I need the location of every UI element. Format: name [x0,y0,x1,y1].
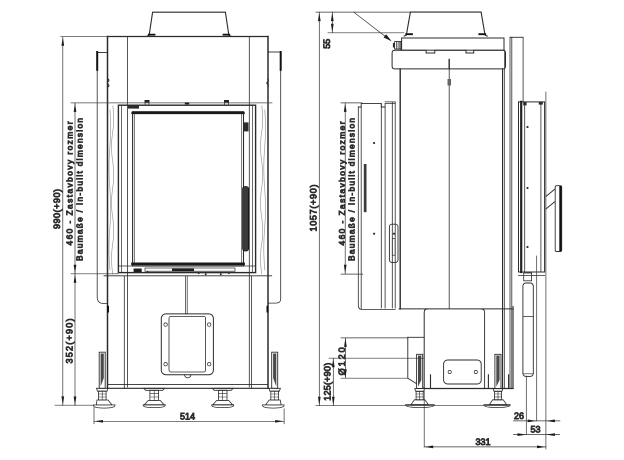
svg-text:53: 53 [531,425,541,435]
svg-text:352(+90): 352(+90) [64,319,74,364]
svg-text:460 - Zastavbovy rozmer: 460 - Zastavbovy rozmer [64,121,74,245]
svg-text:331: 331 [476,437,491,447]
svg-text:1057(+90): 1057(+90) [309,185,319,232]
svg-text:125(+90): 125(+90) [322,363,332,401]
svg-text:26: 26 [514,411,524,421]
svg-text:Baumaße / In-built dimension: Baumaße / In-built dimension [346,118,356,261]
svg-text:55: 55 [322,39,332,49]
svg-text:Ø120: Ø120 [337,347,347,375]
svg-text:Baumaße / In-built dimension: Baumaße / In-built dimension [75,118,85,261]
svg-text:514: 514 [180,412,195,422]
svg-text:990(+90): 990(+90) [52,189,62,229]
